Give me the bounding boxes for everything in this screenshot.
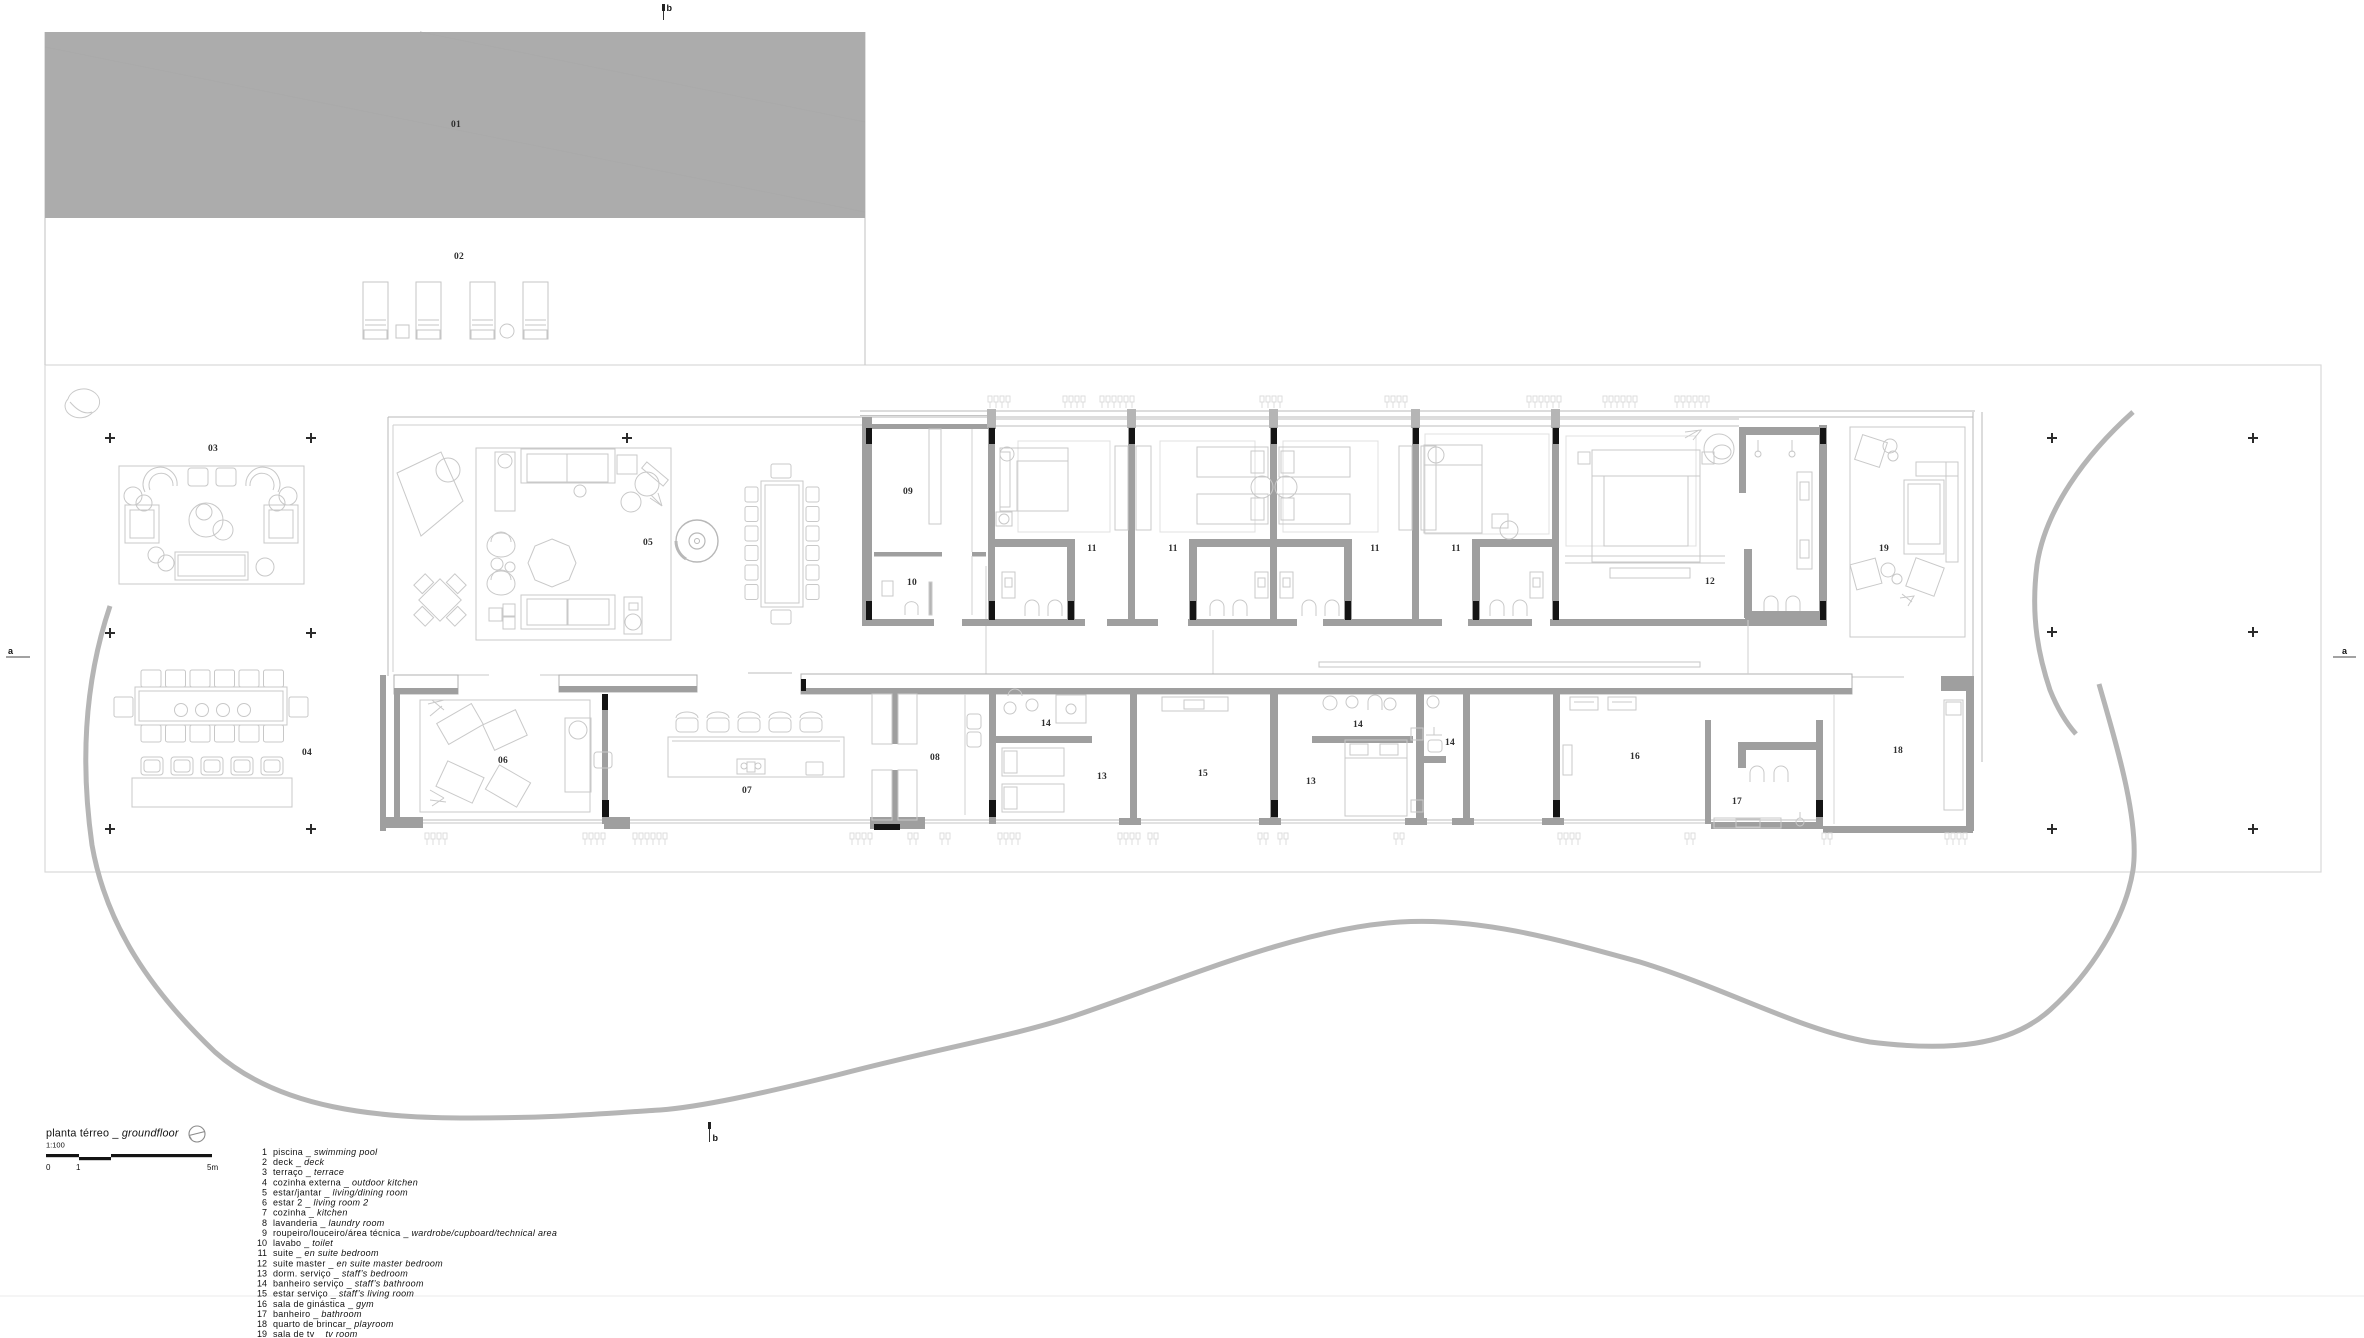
svg-text:11: 11 bbox=[258, 1248, 267, 1258]
svg-text:02: 02 bbox=[454, 252, 464, 262]
svg-text:07: 07 bbox=[742, 786, 752, 796]
svg-text:dorm. serviço _ staff’s bedroo: dorm. serviço _ staff’s bedroom bbox=[273, 1268, 408, 1278]
svg-text:lavanderia _ laundry room: lavanderia _ laundry room bbox=[273, 1218, 385, 1228]
svg-text:6: 6 bbox=[262, 1198, 267, 1208]
svg-text:banheiro serviço _ staff’s bat: banheiro serviço _ staff’s bathroom bbox=[273, 1279, 424, 1289]
svg-text:estar/jantar _ living/dining r: estar/jantar _ living/dining room bbox=[273, 1188, 408, 1198]
svg-text:10: 10 bbox=[907, 578, 917, 588]
svg-text:1: 1 bbox=[262, 1147, 267, 1157]
svg-text:05: 05 bbox=[643, 538, 653, 548]
svg-text:08: 08 bbox=[930, 753, 940, 763]
svg-text:04: 04 bbox=[302, 748, 312, 758]
svg-text:15: 15 bbox=[1198, 769, 1208, 779]
svg-text:14: 14 bbox=[257, 1279, 267, 1289]
svg-text:18: 18 bbox=[1893, 746, 1903, 756]
svg-text:5m: 5m bbox=[207, 1163, 218, 1172]
svg-text:sala de ginástica _ gym: sala de ginástica _ gym bbox=[273, 1299, 374, 1309]
svg-text:13: 13 bbox=[1097, 772, 1107, 782]
svg-text:11: 11 bbox=[1451, 544, 1460, 554]
svg-text:8: 8 bbox=[262, 1218, 267, 1228]
svg-text:09: 09 bbox=[903, 487, 913, 497]
svg-text:0: 0 bbox=[46, 1163, 51, 1172]
svg-text:banheiro _ bathroom: banheiro _ bathroom bbox=[273, 1309, 362, 1319]
svg-text:estar 2 _ living room 2: estar 2 _ living room 2 bbox=[273, 1198, 368, 1208]
svg-text:suite master _ en suite master: suite master _ en suite master bedroom bbox=[273, 1258, 443, 1268]
svg-text:lavabo _ toilet: lavabo _ toilet bbox=[273, 1238, 333, 1248]
svg-text:9: 9 bbox=[262, 1228, 267, 1238]
svg-text:14: 14 bbox=[1353, 720, 1363, 730]
svg-text:suite _ en suite bedroom: suite _ en suite bedroom bbox=[273, 1248, 379, 1258]
svg-text:11: 11 bbox=[1370, 544, 1379, 554]
svg-text:16: 16 bbox=[257, 1299, 267, 1309]
svg-text:7: 7 bbox=[262, 1208, 267, 1218]
svg-text:13: 13 bbox=[1306, 777, 1316, 787]
svg-text:14: 14 bbox=[1041, 719, 1051, 729]
svg-text:06: 06 bbox=[498, 756, 508, 766]
svg-text:11: 11 bbox=[1168, 544, 1177, 554]
svg-text:12: 12 bbox=[1705, 577, 1715, 587]
svg-text:cozinha externa _ outdoor kitc: cozinha externa _ outdoor kitchen bbox=[273, 1177, 418, 1187]
svg-text:1:100: 1:100 bbox=[46, 1141, 65, 1150]
svg-text:b: b bbox=[713, 1133, 719, 1143]
svg-text:piscina _ swimming pool: piscina _ swimming pool bbox=[273, 1147, 378, 1157]
svg-text:11: 11 bbox=[1087, 544, 1096, 554]
svg-text:b: b bbox=[667, 3, 673, 13]
svg-text:13: 13 bbox=[257, 1268, 267, 1278]
svg-text:17: 17 bbox=[1732, 797, 1742, 807]
svg-text:17: 17 bbox=[257, 1309, 267, 1319]
svg-text:estar serviço _ staff’s living: estar serviço _ staff’s living room bbox=[273, 1289, 414, 1299]
svg-text:roupeiro/louceiro/área técnica: roupeiro/louceiro/área técnica _ wardrob… bbox=[273, 1228, 557, 1238]
svg-text:18: 18 bbox=[257, 1319, 267, 1329]
svg-text:15: 15 bbox=[257, 1289, 267, 1299]
svg-text:cozinha _ kitchen: cozinha _ kitchen bbox=[273, 1208, 348, 1218]
svg-text:1: 1 bbox=[76, 1163, 81, 1172]
svg-text:16: 16 bbox=[1630, 752, 1640, 762]
svg-text:terraço _ terrace: terraço _ terrace bbox=[273, 1167, 344, 1177]
svg-text:19: 19 bbox=[1879, 544, 1889, 554]
svg-text:4: 4 bbox=[262, 1177, 267, 1187]
svg-text:12: 12 bbox=[257, 1258, 267, 1268]
svg-text:planta térreo _ groundfloor: planta térreo _ groundfloor bbox=[46, 1128, 179, 1140]
svg-text:deck _ deck: deck _ deck bbox=[273, 1157, 325, 1167]
svg-text:quarto de brincar_ playroom: quarto de brincar_ playroom bbox=[273, 1319, 394, 1329]
svg-text:01: 01 bbox=[451, 120, 461, 130]
svg-text:19: 19 bbox=[257, 1329, 267, 1338]
svg-text:5: 5 bbox=[262, 1188, 267, 1198]
svg-text:10: 10 bbox=[257, 1238, 267, 1248]
svg-text:14: 14 bbox=[1445, 738, 1455, 748]
svg-text:2: 2 bbox=[262, 1157, 267, 1167]
svg-text:3: 3 bbox=[262, 1167, 267, 1177]
svg-text:03: 03 bbox=[208, 444, 218, 454]
svg-text:sala de tv _ tv room: sala de tv _ tv room bbox=[273, 1329, 358, 1338]
